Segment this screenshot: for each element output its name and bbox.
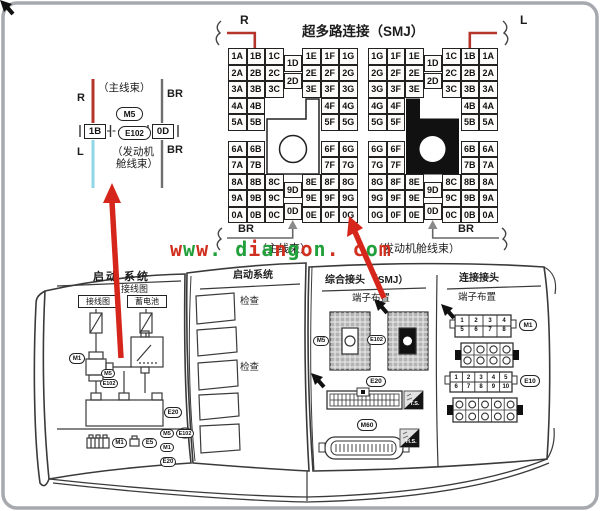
left-grid-cell-7A: 7A	[228, 157, 247, 174]
right-grid-cell-8F: 8F	[387, 174, 406, 191]
right-grid-cell-8C: 8C	[442, 174, 461, 191]
left-grid-cell-0B: 0B	[247, 207, 266, 224]
right-grid-cell-2F: 2F	[387, 65, 406, 82]
right-grid-cell-1B: 1B	[461, 48, 480, 65]
left-page-header: 启动 系统	[93, 271, 150, 283]
left-grid-cell-2E: 2E	[302, 65, 321, 82]
e20-strip-connector	[327, 388, 402, 409]
right-grid-cell-8E: 8E	[405, 174, 424, 191]
left-grid-cell-2D: 2D	[284, 73, 303, 90]
right-grid-cell-9C: 9C	[442, 190, 461, 207]
ts-badge-label: T.S.	[410, 401, 419, 407]
right-grid-cell-1D: 1D	[424, 55, 443, 72]
right-grid-cell-9A: 9A	[479, 190, 498, 207]
junction-main-harness: （主线束）	[98, 83, 151, 95]
m1-pin-8: 8	[498, 327, 510, 333]
left-grid-cell-6B: 6B	[247, 141, 266, 158]
connector-section-header: 连接接头	[459, 273, 499, 284]
oval-e10: E10	[520, 375, 540, 387]
right-grid-cell-9D: 9D	[424, 182, 443, 199]
right-grid-cell-1C: 1C	[442, 48, 461, 65]
right-grid-keyway-circle	[420, 136, 446, 162]
e10-pin-10: 10	[500, 384, 512, 390]
watermark-char: .	[327, 237, 340, 261]
oval-e20-c: E20	[160, 457, 176, 467]
left-grid-cell-8B: 8B	[247, 174, 266, 191]
left-grid-cell-3B: 3B	[247, 81, 266, 98]
oval-m1-c: M1	[160, 443, 174, 452]
left-grid-cell-4A: 4A	[228, 98, 247, 115]
oval-e102-small: E102	[100, 379, 118, 388]
right-grid-cell-8B: 8B	[461, 174, 480, 191]
right-grid-cell-2D: 2D	[424, 73, 443, 90]
right-grid-cell-6A: 6A	[479, 141, 498, 158]
e10-pin-8: 8	[475, 384, 487, 390]
left-grid-cell-7B: 7B	[247, 157, 266, 174]
left-grid-cell-2F: 2F	[321, 65, 340, 82]
br-left-label: BR	[238, 223, 254, 235]
oval-m1-b: M1	[112, 438, 127, 448]
right-grid-cell-4A: 4A	[479, 98, 498, 115]
left-grid-cell-5B: 5B	[247, 114, 266, 131]
left-grid-cell-9G: 9G	[339, 190, 358, 207]
left-grid-cell-7G: 7G	[339, 157, 358, 174]
oval-m5: M5	[313, 336, 329, 346]
right-grid-cell-4F: 4F	[387, 98, 406, 115]
oval-e102: E102	[367, 335, 386, 345]
right-grid-cell-0E: 0E	[405, 207, 424, 224]
terminal-layout-label: 端子布置	[352, 294, 390, 304]
oval-e102-c: E102	[176, 429, 194, 438]
m1-pin-4: 4	[498, 318, 510, 324]
right-grid-cell-0G: 0G	[368, 207, 387, 224]
right-grid-cell-8A: 8A	[479, 174, 498, 191]
right-grid-cell-5F: 5F	[387, 114, 406, 131]
smj-title: 超多路连接（SMJ）	[302, 25, 424, 40]
left-grid-cell-1G: 1G	[339, 48, 358, 65]
left-grid-cell-2A: 2A	[228, 65, 247, 82]
m1-pin-5: 5	[456, 327, 468, 333]
left-grid-cell-2G: 2G	[339, 65, 358, 82]
left-grid-cell-0A: 0A	[228, 207, 247, 224]
right-grid-cell-0D: 0D	[424, 203, 443, 220]
right-grid-cell-4G: 4G	[368, 98, 387, 115]
left-grid-cell-3C: 3C	[265, 81, 284, 98]
left-grid-cell-8A: 8A	[228, 174, 247, 191]
watermark-char: w	[183, 237, 196, 261]
left-grid-cell-0E: 0E	[302, 207, 321, 224]
e10-pin-3: 3	[475, 375, 487, 381]
right-grid-cell-2A: 2A	[479, 65, 498, 82]
left-grid-cell-1B: 1B	[247, 48, 266, 65]
m1-pin-1: 1	[456, 318, 468, 324]
terminal-layout-label-2: 端子布置	[458, 293, 496, 303]
right-grid-cell-1G: 1G	[368, 48, 387, 65]
watermark-char: o	[300, 237, 313, 261]
right-grid-cell-3G: 3G	[368, 81, 387, 98]
br-right-label: BR	[458, 223, 474, 235]
junction-br-bottom: BR	[167, 144, 183, 156]
watermark-char: n	[314, 237, 327, 261]
left-grid-cell-3A: 3A	[228, 81, 247, 98]
oval-m5-small: M5	[101, 369, 115, 378]
hs-badge-label: H.S.	[406, 439, 417, 445]
m1-pin-3: 3	[484, 318, 496, 324]
junction-engine-line2: 舱线束）	[116, 159, 158, 171]
left-grid-cell-1E: 1E	[302, 48, 321, 65]
left-grid-cell-9C: 9C	[265, 190, 284, 207]
left-grid-cell-3E: 3E	[302, 81, 321, 98]
right-grid-cell-1E: 1E	[405, 48, 424, 65]
right-grid-cell-0F: 0F	[387, 207, 406, 224]
round-pin-connector-b	[447, 398, 523, 422]
left-grid-cell-0D: 0D	[284, 203, 303, 220]
watermark-char: d	[235, 237, 248, 261]
e10-pin-7: 7	[463, 384, 475, 390]
right-grid-cell-5G: 5G	[368, 114, 387, 131]
left-grid-cell-0G: 0G	[339, 207, 358, 224]
junction-connector-m5: M5	[116, 107, 143, 121]
right-grid-cell-3C: 3C	[442, 81, 461, 98]
junction-r: R	[77, 92, 85, 104]
left-grid-cell-8E: 8E	[302, 174, 321, 191]
junction-br-top: BR	[167, 88, 183, 100]
junction-engine-line1: （发动机	[112, 147, 154, 159]
left-grid-cell-4G: 4G	[339, 98, 358, 115]
left-grid-cell-6A: 6A	[228, 141, 247, 158]
watermark-char: a	[261, 237, 274, 261]
left-grid-cell-9A: 9A	[228, 190, 247, 207]
e10-pin-6: 6	[450, 384, 462, 390]
right-grid-cell-3B: 3B	[461, 81, 480, 98]
right-grid-cell-8G: 8G	[368, 174, 387, 191]
right-grid-cell-3A: 3A	[479, 81, 498, 98]
junction-pin-0d: 0D	[152, 124, 174, 139]
left-grid-cell-0F: 0F	[321, 207, 340, 224]
oval-m60: M60	[357, 419, 377, 431]
right-grid-cell-0A: 0A	[479, 207, 498, 224]
check-label-1: 检查	[240, 297, 259, 307]
e10-pin-2: 2	[463, 375, 475, 381]
e10-pin-5: 5	[500, 375, 512, 381]
left-grid-cell-4F: 4F	[321, 98, 340, 115]
left-grid-cell-1A: 1A	[228, 48, 247, 65]
watermark-char	[222, 237, 235, 261]
right-grid-cell-2E: 2E	[405, 65, 424, 82]
watermark-char: m	[379, 237, 392, 261]
m1-pin-7: 7	[484, 327, 496, 333]
left-grid-cell-5A: 5A	[228, 114, 247, 131]
left-grid-cell-1F: 1F	[321, 48, 340, 65]
watermark-char: w	[196, 237, 209, 261]
junction-l: L	[77, 146, 84, 158]
left-grid-cell-8G: 8G	[339, 174, 358, 191]
left-grid-cell-6F: 6F	[321, 141, 340, 158]
left-grid-cell-5G: 5G	[339, 114, 358, 131]
left-grid-cell-4B: 4B	[247, 98, 266, 115]
left-grid-cell-8C: 8C	[265, 174, 284, 191]
left-grid-cell-3G: 3G	[339, 81, 358, 98]
junction-pin-1b: 1B	[84, 124, 106, 139]
right-grid-cell-7A: 7A	[479, 157, 498, 174]
oval-e20-right: E20	[366, 376, 386, 387]
right-grid-cell-1A: 1A	[479, 48, 498, 65]
watermark-char: n	[274, 237, 287, 261]
left-grid-cell-5F: 5F	[321, 114, 340, 131]
watermark-char: o	[366, 237, 379, 261]
right-grid-cell-7G: 7G	[368, 157, 387, 174]
left-grid-cell-1D: 1D	[284, 55, 303, 72]
left-grid-cell-2C: 2C	[265, 65, 284, 82]
watermark-char	[340, 237, 353, 261]
m60-connector	[319, 437, 409, 459]
right-grid-cell-7F: 7F	[387, 157, 406, 174]
watermark-char: .	[209, 237, 222, 261]
left-grid-cell-9F: 9F	[321, 190, 340, 207]
middle-page-header: 启动系统	[233, 270, 273, 281]
watermark-char: c	[353, 237, 366, 261]
oval-e20: E20	[164, 407, 182, 418]
right-grid-cell-2G: 2G	[368, 65, 387, 82]
watermark-char: i	[248, 237, 261, 261]
battery-box: 蓄电池	[127, 295, 167, 308]
right-grid-cell-7B: 7B	[461, 157, 480, 174]
right-grid-cell-3E: 3E	[405, 81, 424, 98]
smj-thumbnail-e102	[388, 312, 428, 370]
right-grid-cell-5A: 5A	[479, 114, 498, 131]
right-grid-cell-9B: 9B	[461, 190, 480, 207]
right-grid-cell-6G: 6G	[368, 141, 387, 158]
m1-pin-2: 2	[470, 318, 482, 324]
watermark-char: w	[170, 237, 183, 261]
junction-connector-e102: E102	[118, 126, 151, 140]
r-side-label: R	[240, 14, 249, 27]
e10-pin-1: 1	[450, 375, 462, 381]
left-grid-cell-8F: 8F	[321, 174, 340, 191]
round-pin-connector-a	[455, 343, 519, 367]
left-grid-cell-9D: 9D	[284, 182, 303, 199]
right-grid-cell-9F: 9F	[387, 190, 406, 207]
check-label-2: 检查	[240, 363, 259, 373]
l-side-label: L	[520, 14, 527, 27]
wiring-diagram-box: 接线图	[78, 295, 118, 308]
right-grid-cell-6F: 6F	[387, 141, 406, 158]
oval-m1: M1	[69, 353, 85, 364]
right-grid-cell-5B: 5B	[461, 114, 480, 131]
right-grid-cell-0B: 0B	[461, 207, 480, 224]
left-page-subheader: 接线图	[121, 285, 148, 295]
watermark-text: www. diangon. com	[170, 237, 392, 261]
left-grid-cell-9E: 9E	[302, 190, 321, 207]
right-grid-cell-9G: 9G	[368, 190, 387, 207]
oval-e5: E5	[142, 438, 157, 448]
left-grid-cell-7F: 7F	[321, 157, 340, 174]
m1-pin-6: 6	[470, 327, 482, 333]
watermark-char: g	[287, 237, 300, 261]
e10-pin-9: 9	[487, 384, 499, 390]
e10-pin-4: 4	[487, 375, 499, 381]
right-grid-cell-6B: 6B	[461, 141, 480, 158]
left-grid-cell-0C: 0C	[265, 207, 284, 224]
right-grid-cell-3F: 3F	[387, 81, 406, 98]
right-grid-cell-2C: 2C	[442, 65, 461, 82]
oval-m5-c: M5	[160, 429, 174, 438]
smj-section-header: 综合接头 （SMJ）	[325, 275, 408, 286]
left-grid-cell-2B: 2B	[247, 65, 266, 82]
left-grid-cell-1C: 1C	[265, 48, 284, 65]
right-grid-cell-0C: 0C	[442, 207, 461, 224]
right-grid-cell-1F: 1F	[387, 48, 406, 65]
smj-thumbnail-m5	[330, 312, 370, 370]
right-grid-cell-2B: 2B	[461, 65, 480, 82]
left-grid-cell-9B: 9B	[247, 190, 266, 207]
right-grid-cell-4B: 4B	[461, 98, 480, 115]
left-grid-cell-6G: 6G	[339, 141, 358, 158]
right-grid-cell-9E: 9E	[405, 190, 424, 207]
wiring-manual-figure: 超多路连接（SMJ） R L BR BR （主线束） （发动机舱线束） （主线束…	[0, 0, 600, 511]
left-grid-cell-3F: 3F	[321, 81, 340, 98]
oval-m1-right: M1	[519, 319, 537, 331]
